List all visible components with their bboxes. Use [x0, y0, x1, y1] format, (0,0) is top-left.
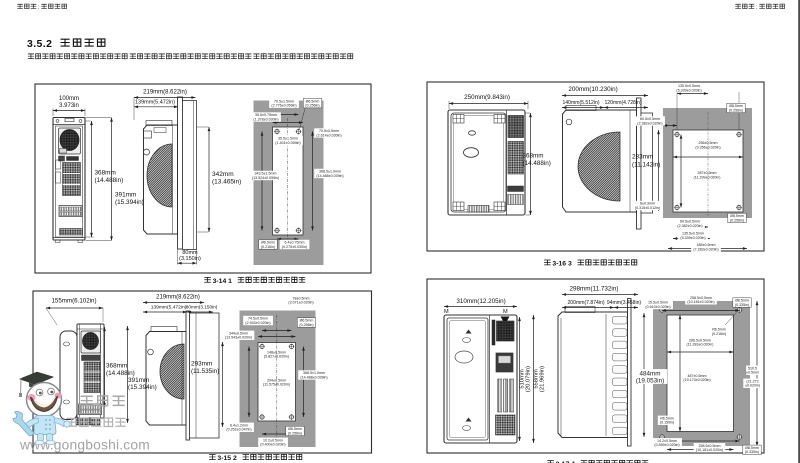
- svg-text:(5.339±0.020in): (5.339±0.020in): [680, 236, 705, 240]
- svg-text:(0.216in): (0.216in): [261, 245, 275, 249]
- svg-text:(20.079in): (20.079in): [526, 366, 532, 392]
- svg-text:(11.299±0.020in): (11.299±0.020in): [694, 175, 721, 179]
- svg-text:(11.142in): (11.142in): [632, 161, 660, 168]
- svg-text:(5.339±0.020in): (5.339±0.020in): [676, 88, 701, 92]
- svg-text:(0.256in): (0.256in): [299, 323, 313, 327]
- svg-text:3-14 1: 3-14 1: [213, 278, 233, 285]
- svg-text:391mm: 391mm: [115, 192, 136, 199]
- svg-text:M: M: [503, 309, 508, 315]
- svg-text:(0.400±0.020in): (0.400±0.020in): [260, 443, 285, 447]
- svg-text:342mm: 342mm: [212, 171, 234, 178]
- svg-text:(10.181±0.020in): (10.181±0.020in): [687, 300, 714, 304]
- svg-text:(5.827±0.020in): (5.827±0.020in): [264, 355, 289, 359]
- svg-text:(2.776±0.059in): (2.776±0.059in): [271, 104, 296, 108]
- svg-text:(11.575±0.020in): (11.575±0.020in): [263, 383, 290, 387]
- svg-text:(0.256in): (0.256in): [730, 218, 744, 222]
- svg-text:(2.382±0.020in): (2.382±0.020in): [677, 224, 702, 228]
- svg-text:200mm(10.230in): 200mm(10.230in): [568, 86, 617, 93]
- svg-text:(14.488±0.039in): (14.488±0.039in): [316, 174, 343, 178]
- svg-text:(0.335in): (0.335in): [735, 303, 749, 307]
- svg-text:(11.283±0.020in): (11.283±0.020in): [687, 343, 714, 347]
- svg-text:(0.315±0.012in): (0.315±0.012in): [635, 206, 660, 210]
- svg-text:(0.559±0.020in): (0.559±0.020in): [654, 443, 679, 447]
- svg-text::: :: [38, 4, 40, 11]
- svg-text:(19.173±0.020in): (19.173±0.020in): [683, 378, 710, 382]
- svg-text:(15.394in): (15.394in): [128, 384, 157, 391]
- svg-text:139mm(5.472in): 139mm(5.472in): [135, 100, 175, 106]
- svg-text:(2.614±0.030in): (2.614±0.030in): [316, 133, 341, 137]
- svg-text:(2.382±0.020in): (2.382±0.020in): [637, 121, 662, 125]
- svg-text:(3.150in): (3.150in): [179, 256, 201, 262]
- svg-text:(0.610±0.020in): (0.610±0.020in): [645, 305, 670, 309]
- svg-text:94mm(3.458in): 94mm(3.458in): [607, 300, 642, 306]
- svg-text:(7.283±0.020in): (7.283±0.020in): [693, 247, 718, 251]
- svg-text:3-15 2: 3-15 2: [217, 455, 237, 462]
- svg-text:(14.488in): (14.488in): [523, 160, 551, 167]
- svg-text:(11.535in): (11.535in): [191, 368, 219, 375]
- svg-text:100mm: 100mm: [59, 96, 79, 102]
- svg-text:(1.378±0.030in): (1.378±0.030in): [253, 117, 278, 121]
- svg-text:139mm(5.472in): 139mm(5.472in): [151, 305, 187, 311]
- svg-text:3.973in: 3.973in: [59, 103, 79, 109]
- svg-text:(0.256in): (0.256in): [288, 431, 302, 435]
- svg-text:(3.071±0.020in): (3.071±0.020in): [288, 301, 313, 305]
- svg-text:(0.275±0.030in): (0.275±0.030in): [282, 245, 307, 249]
- svg-text:298mm(11.732in): 298mm(11.732in): [570, 285, 619, 292]
- svg-text:(0.252±0.047in): (0.252±0.047in): [226, 428, 251, 432]
- svg-text:(13.524±0.059in): (13.524±0.059in): [252, 176, 279, 180]
- svg-text:(10.181±0.020in): (10.181±0.020in): [696, 448, 723, 452]
- svg-text:±0.5mm: ±0.5mm: [746, 371, 759, 375]
- svg-text:219mm(8.622in): 219mm(8.622in): [156, 294, 200, 300]
- svg-text:310mm(12.205in): 310mm(12.205in): [456, 298, 505, 305]
- svg-text:219mm(8.622in): 219mm(8.622in): [143, 90, 187, 96]
- svg-text:368mm: 368mm: [523, 153, 544, 160]
- svg-text:140mm(5.512in): 140mm(5.512in): [562, 100, 599, 106]
- svg-text:155mm(6.102in): 155mm(6.102in): [51, 298, 96, 305]
- svg-text:120mm(4.728in): 120mm(4.728in): [604, 100, 641, 106]
- svg-text:(0.335in): (0.335in): [745, 450, 759, 454]
- svg-text:(13.543±0.020in): (13.543±0.020in): [225, 336, 252, 340]
- svg-text:(21.969in): (21.969in): [540, 366, 546, 392]
- svg-text:M: M: [444, 309, 449, 315]
- svg-text:368mm: 368mm: [106, 363, 127, 370]
- svg-text:283mm: 283mm: [632, 154, 653, 161]
- svg-text:293mm: 293mm: [191, 360, 212, 367]
- svg-text:(15.394in): (15.394in): [115, 199, 144, 206]
- svg-text:(14.488in): (14.488in): [95, 177, 124, 184]
- svg-text:(19.053in): (19.053in): [636, 378, 664, 385]
- svg-text:200mm(7.874in): 200mm(7.874in): [567, 300, 604, 306]
- svg-text:±0.020in): ±0.020in): [745, 384, 760, 388]
- svg-text:(0.150in): (0.150in): [660, 421, 674, 425]
- svg-text:(14.488±0.039in): (14.488±0.039in): [300, 375, 327, 379]
- svg-text:(2.933±0.020in): (2.933±0.020in): [245, 321, 270, 325]
- svg-text:368mm: 368mm: [95, 170, 116, 177]
- svg-text:(14.488in): (14.488in): [106, 370, 135, 377]
- svg-text:391mm: 391mm: [128, 377, 149, 384]
- svg-text:250mm(9.843in): 250mm(9.843in): [464, 94, 510, 101]
- svg-text:(9.356±0.020in): (9.356±0.020in): [695, 145, 720, 149]
- svg-text:(1.401±0.059in): (1.401±0.059in): [275, 141, 300, 145]
- svg-text:(13.465in): (13.465in): [212, 179, 241, 186]
- svg-text::: :: [756, 4, 758, 11]
- svg-text:3-16 3: 3-16 3: [552, 260, 572, 267]
- svg-text:80mm(3.150in): 80mm(3.150in): [186, 305, 218, 310]
- svg-text:(0.256in): (0.256in): [729, 108, 743, 112]
- svg-text:(0.216in): (0.216in): [712, 332, 726, 336]
- svg-text:3.5.2: 3.5.2: [27, 38, 52, 50]
- svg-text:(0.256in): (0.256in): [305, 104, 319, 108]
